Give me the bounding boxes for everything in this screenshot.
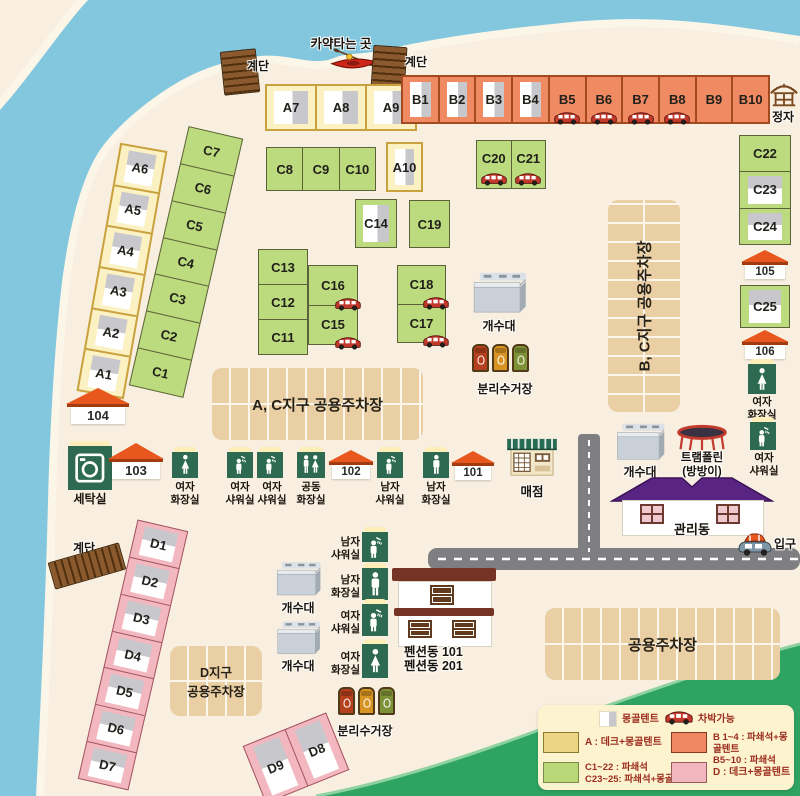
shower-icon [261, 454, 280, 475]
site-c21: C21 [512, 141, 546, 188]
site-group-b1-b10: B1 B2 B3 B4 B5 B6 B7 B8 B9 B10 [401, 75, 770, 124]
site-a7: A7 [267, 86, 317, 129]
site-b10: B10 [733, 77, 768, 122]
pension-window [430, 585, 454, 605]
site-c8: C8 [267, 148, 303, 190]
site-group-c11-c13: C13 C12 C11 [258, 249, 308, 355]
roof-icon [741, 330, 789, 342]
marker-102: 102 [328, 450, 374, 479]
recycle-label: 분리수거장 [466, 380, 544, 397]
site-a5: A5 [107, 186, 158, 235]
entrance-label: 입구 [770, 535, 800, 552]
site-c13: C13 [259, 250, 307, 285]
car-icon [421, 296, 451, 310]
site-c25: C25 [740, 285, 790, 328]
site-c24: C24 [740, 209, 790, 244]
men-toilet-label: 남자 화장실 [415, 481, 457, 506]
parking-bc-label: B, C지구 공용주차장 [634, 241, 655, 372]
site-group-c15-c16: C16 C15 [308, 265, 358, 345]
car-icon [421, 334, 451, 348]
entrance-car-icon [736, 532, 774, 558]
site-b9: B9 [697, 77, 734, 122]
women-shower [750, 422, 776, 450]
women-toilet [748, 364, 776, 394]
parking-common: 공용주차장 [545, 608, 780, 680]
site-group-c22-c24: C22 C23 C24 [739, 135, 791, 245]
site-a4: A4 [100, 227, 151, 276]
women-shower [362, 604, 388, 636]
site-c10: C10 [340, 148, 375, 190]
woman-icon [752, 367, 772, 392]
site-c15: C15 [309, 306, 357, 345]
car-icon [664, 710, 694, 725]
campground-map: 카약타는 곳 계단 계단 정자 A7 A8 A9 B1 B2 B3 B4 B5 … [0, 0, 800, 796]
washer-icon [74, 450, 106, 486]
site-group-c17-c18: C18 C17 [397, 265, 446, 343]
legend-car-label: 차박가능 [698, 714, 735, 726]
site-b2: B2 [440, 77, 477, 122]
legend-a-label: A : 데크+몽골텐트 [585, 737, 662, 749]
kayak-icon [330, 48, 378, 72]
roof-icon [328, 450, 374, 462]
legend-d-label: D : 데크+몽골텐트 [713, 767, 790, 779]
stairs-label: 계단 [398, 53, 434, 70]
parking-ac: A, C지구 공용주차장 [212, 368, 423, 440]
women-toilet-label: 여자 화장실 [164, 481, 206, 506]
men-shower-label: 남자 샤워실 [322, 536, 360, 561]
pension-label: 펜션동 101 펜션동 201 [404, 645, 496, 673]
site-c12: C12 [259, 285, 307, 320]
shower-icon [366, 535, 385, 560]
pension-window [408, 620, 432, 638]
site-c18: C18 [398, 266, 445, 305]
tent-icon [600, 712, 616, 726]
sink-icon [470, 271, 528, 315]
sink-icon [274, 560, 322, 598]
site-group-a7-a9: A7 A8 A9 [265, 84, 417, 131]
marker-105: 105 [741, 250, 789, 279]
site-a3: A3 [93, 268, 144, 317]
site-c17: C17 [398, 305, 445, 343]
shower-icon [231, 454, 250, 475]
site-b4: B4 [513, 77, 550, 122]
car-icon [552, 111, 582, 125]
site-group-c8-c10: C8 C9 C10 [266, 147, 376, 191]
shower-icon [366, 607, 385, 633]
roof-icon [741, 250, 789, 262]
car-icon [513, 172, 543, 186]
sink-label: 개수대 [276, 657, 320, 674]
bin-red [338, 687, 355, 715]
car-icon [333, 297, 363, 311]
woman-icon [366, 647, 385, 675]
sink-icon [274, 620, 322, 656]
site-a8: A8 [317, 86, 367, 129]
women-toilet [362, 644, 388, 678]
site-c16: C16 [309, 266, 357, 306]
site-c19: C19 [409, 200, 450, 248]
car-icon [479, 172, 509, 186]
car-icon [589, 111, 619, 125]
men-toilet-label: 남자 화장실 [322, 574, 360, 599]
recycle-bins-icon [338, 687, 395, 715]
pension-mid-roof [394, 608, 494, 616]
legend-swatch-d [671, 762, 707, 783]
men-shower-label: 남자 샤워실 [369, 481, 411, 506]
sink-icon [614, 422, 666, 462]
laundry-label: 세탁실 [62, 493, 118, 506]
parking-bc: B, C지구 공용주차장 [608, 200, 680, 412]
marker-106: 106 [741, 330, 789, 359]
recycle-bins-icon [472, 344, 529, 372]
women-toilet [172, 452, 198, 478]
site-a2: A2 [86, 309, 137, 358]
shower-icon [381, 454, 400, 475]
site-c22: C22 [740, 136, 790, 172]
legend-swatch-a [543, 732, 579, 753]
man-icon [366, 571, 385, 597]
men-shower [362, 532, 388, 562]
site-b3: B3 [476, 77, 513, 122]
men-toilet [423, 452, 449, 478]
sink-label: 개수대 [473, 317, 525, 334]
roof-icon [66, 388, 130, 404]
parking-ac-label: A, C지구 공용주차장 [252, 394, 383, 415]
sink-label: 개수대 [276, 599, 320, 616]
men-toilet [362, 568, 388, 600]
roof-icon [108, 443, 164, 459]
women-shower [257, 452, 283, 478]
mgmt-roof [610, 474, 774, 502]
parking-d: D지구 공용주차장 [170, 646, 262, 716]
store-icon [505, 437, 559, 479]
common-toilet [297, 452, 325, 478]
car-icon [662, 111, 692, 125]
parking-d-label: D지구 공용주차장 [187, 662, 245, 700]
site-c20: C20 [477, 141, 512, 188]
dual-icon [301, 454, 321, 475]
bin-green [512, 344, 529, 372]
parking-common-label: 공용주차장 [628, 634, 697, 655]
laundry [68, 446, 112, 490]
site-b8: B8 [660, 77, 697, 122]
common-toilet-label: 공동 화장실 [290, 481, 332, 506]
woman-icon [176, 454, 195, 475]
men-shower [377, 452, 403, 478]
shower-icon [754, 425, 773, 448]
legend-swatch-c [543, 762, 579, 783]
marker-101: 101 [451, 451, 495, 480]
site-b5: B5 [550, 77, 587, 122]
store-label: 매점 [512, 481, 552, 500]
bin-yellow [358, 687, 375, 715]
site-group-c20-c21: C20 C21 [476, 140, 546, 189]
site-c11: C11 [259, 320, 307, 354]
legend-b-label: B 1~4 : 파쇄석+몽골텐트 B5~10 : 파쇄석 [713, 732, 794, 767]
car-icon [626, 111, 656, 125]
roof-icon [451, 451, 495, 463]
women-shower-label: 여자 샤워실 [252, 481, 292, 506]
marker-103: 103 [108, 443, 164, 479]
legend: 몽골텐트 차박가능 A : 데크+몽골텐트 B 1~4 : 파쇄석+몽골텐트 B… [538, 705, 794, 790]
legend-swatch-b [671, 732, 707, 753]
car-icon [333, 336, 363, 350]
site-b1: B1 [403, 77, 440, 122]
marker-104: 104 [66, 388, 130, 424]
site-a6: A6 [115, 145, 166, 194]
site-c9: C9 [303, 148, 339, 190]
site-c23: C23 [740, 172, 790, 208]
legend-tent-label: 몽골텐트 [622, 714, 659, 726]
site-b6: B6 [587, 77, 624, 122]
bin-green [378, 687, 395, 715]
stairs-label: 계단 [240, 57, 276, 74]
women-shower-label: 여자 샤워실 [322, 610, 360, 635]
site-c14: C14 [355, 199, 397, 248]
pension-window [452, 620, 476, 638]
pavilion-icon [769, 82, 799, 110]
women-toilet-label: 여자 화장실 [322, 651, 360, 676]
site-b7: B7 [623, 77, 660, 122]
site-a10: A10 [386, 142, 423, 192]
man-icon [427, 454, 446, 475]
recycle-label: 분리수거장 [328, 722, 402, 739]
bin-red [472, 344, 489, 372]
pension-roof [392, 568, 496, 581]
bin-yellow [492, 344, 509, 372]
women-shower [227, 452, 253, 478]
trampoline-icon [674, 424, 730, 452]
